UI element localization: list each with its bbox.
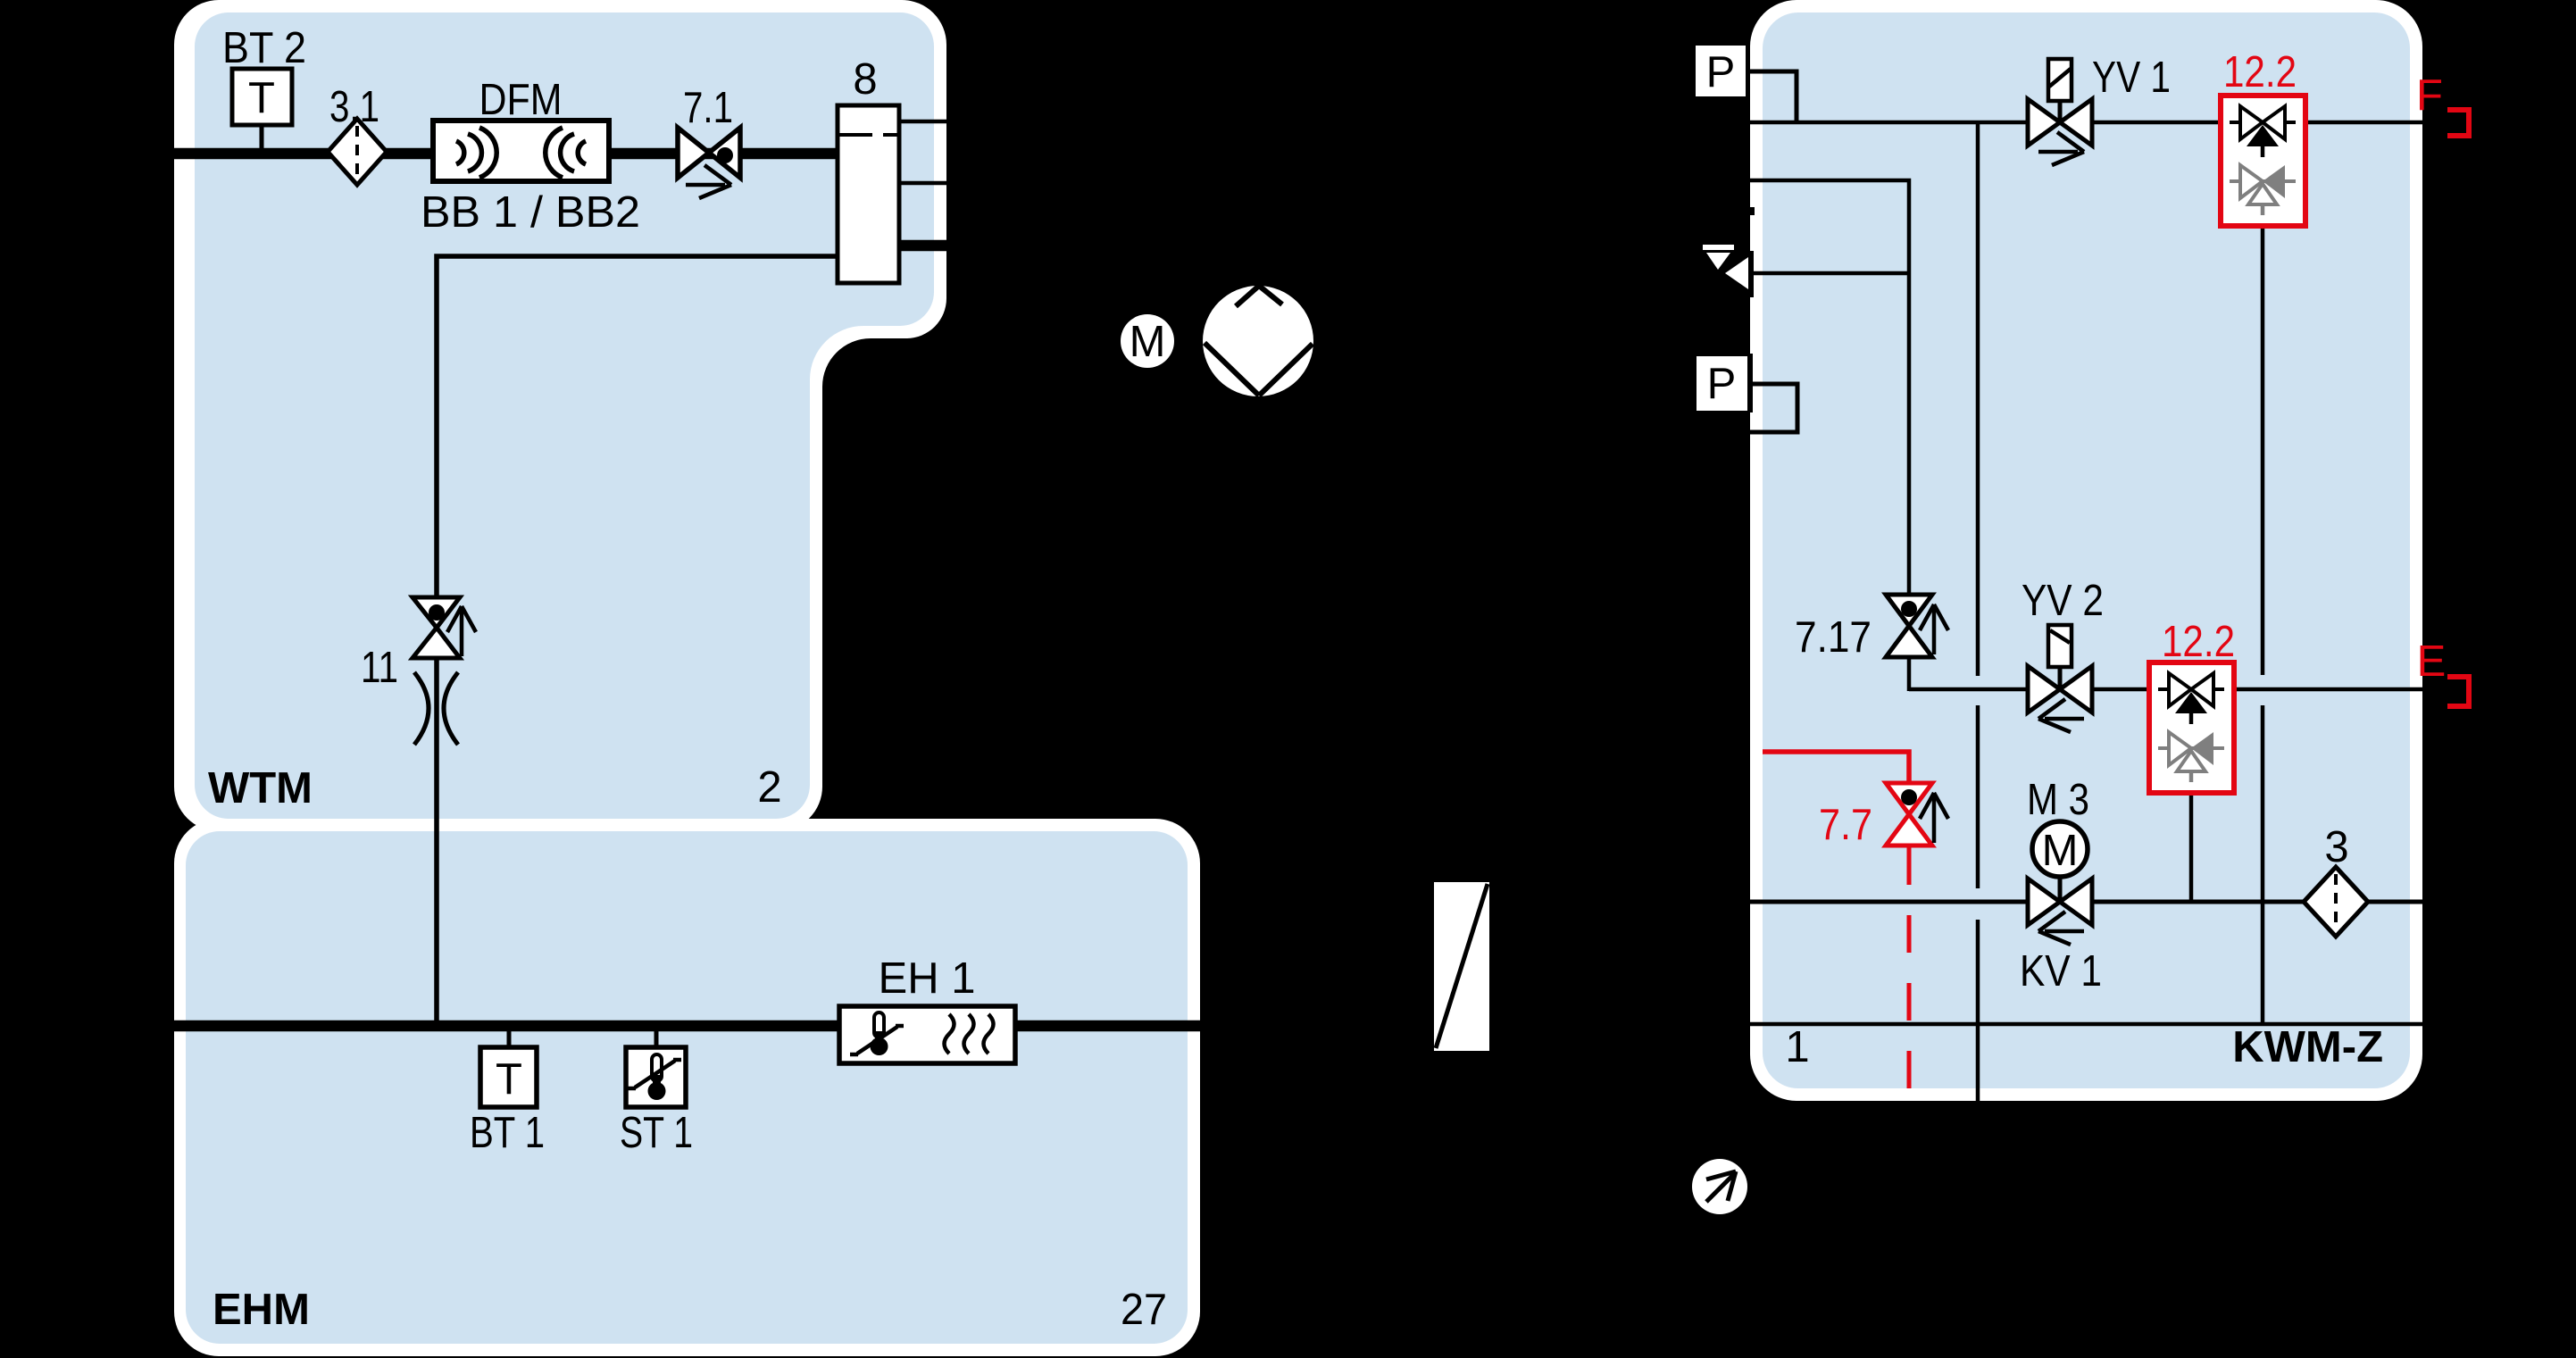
svg-text:3.1: 3.1 — [329, 83, 379, 131]
svg-text:7.1: 7.1 — [683, 84, 733, 132]
svg-text:DFM: DFM — [479, 76, 563, 124]
svg-text:1: 1 — [1785, 1023, 1809, 1071]
svg-text:12.2: 12.2 — [2223, 48, 2297, 96]
svg-text:BT 1: BT 1 — [470, 1109, 545, 1157]
svg-text:KV 1: KV 1 — [2020, 947, 2102, 996]
svg-text:12.2: 12.2 — [2162, 618, 2235, 666]
svg-text:WTM: WTM — [208, 764, 313, 812]
svg-text:ST 1: ST 1 — [620, 1109, 693, 1157]
svg-text:3: 3 — [2324, 823, 2348, 871]
svg-text:8: 8 — [853, 55, 877, 104]
svg-text:11: 11 — [361, 644, 398, 692]
svg-text:P: P — [1707, 360, 1737, 408]
svg-text:YV 1: YV 1 — [2092, 54, 2171, 102]
svg-text:T: T — [248, 74, 275, 122]
svg-text:BB 1 / BB2: BB 1 / BB2 — [421, 188, 640, 237]
svg-text:P: P — [1706, 48, 1736, 96]
svg-text:M 3: M 3 — [2027, 776, 2089, 824]
svg-text:2: 2 — [757, 763, 781, 812]
svg-text:T: T — [496, 1055, 522, 1104]
svg-text:M: M — [1130, 318, 1166, 366]
svg-text:7.17: 7.17 — [1795, 613, 1872, 662]
svg-text:27: 27 — [1121, 1286, 1167, 1334]
svg-text:E: E — [2417, 637, 2447, 686]
svg-text:F: F — [2416, 71, 2443, 120]
svg-text:BT 2: BT 2 — [222, 24, 306, 72]
svg-text:YV 2: YV 2 — [2022, 577, 2104, 625]
svg-text:KWM-Z: KWM-Z — [2232, 1023, 2383, 1071]
svg-text:7.7: 7.7 — [1819, 801, 1872, 849]
svg-text:EHM: EHM — [213, 1286, 310, 1334]
svg-text:EH 1: EH 1 — [879, 954, 976, 1003]
svg-text:M: M — [2042, 827, 2079, 875]
